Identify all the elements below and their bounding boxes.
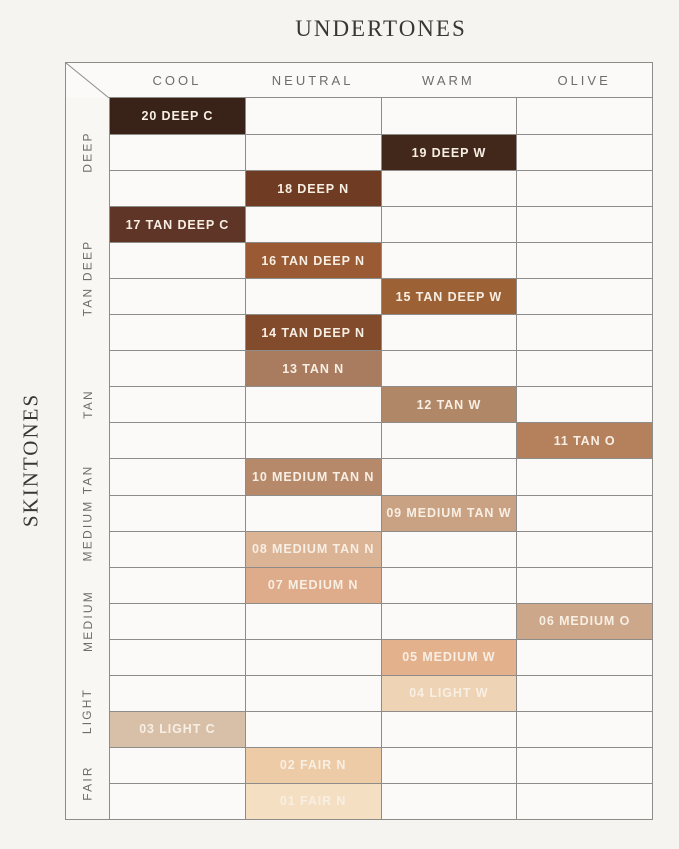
row-group-label: LIGHT xyxy=(81,688,95,734)
column-header-row: COOL NEUTRAL WARM OLIVE xyxy=(66,63,652,98)
shade-cell-09-medium-tan-w: 09 MEDIUM TAN W xyxy=(381,495,517,531)
shade-matrix: COOL NEUTRAL WARM OLIVE DEEP TAN DEEP TA… xyxy=(65,62,653,820)
empty-cell xyxy=(109,531,245,567)
row-group-label: MEDIUM TAN xyxy=(81,464,95,561)
empty-cell xyxy=(109,386,245,422)
empty-cell xyxy=(516,278,652,314)
empty-cell xyxy=(109,350,245,386)
empty-cell xyxy=(109,314,245,350)
shade-cell-04-light-w: 04 LIGHT W xyxy=(381,675,517,711)
empty-cell xyxy=(381,98,517,134)
empty-cell xyxy=(109,170,245,206)
empty-cell xyxy=(245,98,381,134)
empty-cell xyxy=(245,134,381,170)
shade-cell-19-deep-w: 19 DEEP W xyxy=(381,134,517,170)
shade-cell-11-tan-o: 11 TAN O xyxy=(516,422,652,458)
empty-cell xyxy=(245,711,381,747)
empty-cell xyxy=(516,170,652,206)
empty-cell xyxy=(516,350,652,386)
empty-cell xyxy=(381,242,517,278)
shade-cell-20-deep-c: 20 DEEP C xyxy=(109,98,245,134)
row-group-light: LIGHT xyxy=(66,675,109,747)
empty-cell xyxy=(109,639,245,675)
shade-cell-18-deep-n: 18 DEEP N xyxy=(245,170,381,206)
empty-cell xyxy=(245,422,381,458)
empty-cell xyxy=(516,314,652,350)
shade-cell-02-fair-n: 02 FAIR N xyxy=(245,747,381,783)
empty-cell xyxy=(516,134,652,170)
empty-cell xyxy=(245,675,381,711)
empty-cell xyxy=(516,242,652,278)
empty-cell xyxy=(516,98,652,134)
shade-cell-05-medium-w: 05 MEDIUM W xyxy=(381,639,517,675)
row-group-label: MEDIUM xyxy=(81,590,95,652)
empty-cell xyxy=(109,567,245,603)
empty-cell xyxy=(516,458,652,494)
column-header-warm: WARM xyxy=(381,63,517,98)
column-header-neutral: NEUTRAL xyxy=(245,63,381,98)
shade-grid: 20 DEEP C19 DEEP W18 DEEP N17 TAN DEEP C… xyxy=(109,98,652,819)
row-group-fair: FAIR xyxy=(66,747,109,819)
empty-cell xyxy=(516,567,652,603)
empty-cell xyxy=(516,675,652,711)
empty-cell xyxy=(516,495,652,531)
row-group-label: DEEP xyxy=(80,131,94,172)
empty-cell xyxy=(109,783,245,819)
empty-cell xyxy=(516,386,652,422)
row-group-tan-deep: TAN DEEP xyxy=(66,206,109,350)
row-group-tan: TAN xyxy=(66,350,109,458)
shade-cell-17-tan-deep-c: 17 TAN DEEP C xyxy=(109,206,245,242)
empty-cell xyxy=(109,278,245,314)
shade-cell-08-medium-tan-n: 08 MEDIUM TAN N xyxy=(245,531,381,567)
column-header-cool: COOL xyxy=(109,63,245,98)
shade-cell-06-medium-o: 06 MEDIUM O xyxy=(516,603,652,639)
shade-cell-14-tan-deep-n: 14 TAN DEEP N xyxy=(245,314,381,350)
empty-cell xyxy=(381,458,517,494)
empty-cell xyxy=(109,458,245,494)
empty-cell xyxy=(381,567,517,603)
empty-cell xyxy=(245,206,381,242)
empty-cell xyxy=(109,747,245,783)
row-group-deep: DEEP xyxy=(66,98,109,206)
empty-cell xyxy=(516,747,652,783)
corner-cell xyxy=(66,63,109,98)
diagonal-divider-line xyxy=(66,63,109,98)
empty-cell xyxy=(381,747,517,783)
shade-cell-03-light-c: 03 LIGHT C xyxy=(109,711,245,747)
shade-cell-10-medium-tan-n: 10 MEDIUM TAN N xyxy=(245,458,381,494)
row-group-label: FAIR xyxy=(80,765,94,800)
shade-cell-12-tan-w: 12 TAN W xyxy=(381,386,517,422)
empty-cell xyxy=(245,603,381,639)
shade-cell-07-medium-n: 07 MEDIUM N xyxy=(245,567,381,603)
empty-cell xyxy=(381,711,517,747)
empty-cell xyxy=(381,314,517,350)
empty-cell xyxy=(109,422,245,458)
empty-cell xyxy=(381,422,517,458)
shade-cell-13-tan-n: 13 TAN N xyxy=(245,350,381,386)
empty-cell xyxy=(516,783,652,819)
shade-cell-01-fair-n: 01 FAIR N xyxy=(245,783,381,819)
empty-cell xyxy=(516,531,652,567)
shade-chart-page: UNDERTONES SKINTONES COOL NEUTRAL WARM O… xyxy=(0,0,679,849)
empty-cell xyxy=(381,206,517,242)
empty-cell xyxy=(245,639,381,675)
empty-cell xyxy=(381,350,517,386)
empty-cell xyxy=(516,206,652,242)
matrix-body: DEEP TAN DEEP TAN MEDIUM TAN MEDIUM LIGH… xyxy=(66,98,652,819)
shade-cell-16-tan-deep-n: 16 TAN DEEP N xyxy=(245,242,381,278)
empty-cell xyxy=(109,134,245,170)
shade-cell-15-tan-deep-w: 15 TAN DEEP W xyxy=(381,278,517,314)
empty-cell xyxy=(381,603,517,639)
empty-cell xyxy=(109,675,245,711)
empty-cell xyxy=(516,711,652,747)
empty-cell xyxy=(381,170,517,206)
row-group-medium-tan: MEDIUM TAN xyxy=(66,459,109,567)
empty-cell xyxy=(381,531,517,567)
row-group-label: TAN xyxy=(81,390,95,420)
empty-cell xyxy=(381,783,517,819)
empty-cell xyxy=(245,386,381,422)
row-group-label: TAN DEEP xyxy=(81,240,95,317)
row-group-medium: MEDIUM xyxy=(66,567,109,675)
column-header-olive: OLIVE xyxy=(516,63,652,98)
empty-cell xyxy=(109,242,245,278)
empty-cell xyxy=(109,495,245,531)
empty-cell xyxy=(245,278,381,314)
empty-cell xyxy=(109,603,245,639)
empty-cell xyxy=(516,639,652,675)
y-axis-label: SKINTONES xyxy=(19,393,44,527)
chart-title: UNDERTONES xyxy=(108,16,654,42)
row-group-labels: DEEP TAN DEEP TAN MEDIUM TAN MEDIUM LIGH… xyxy=(66,98,109,819)
empty-cell xyxy=(245,495,381,531)
